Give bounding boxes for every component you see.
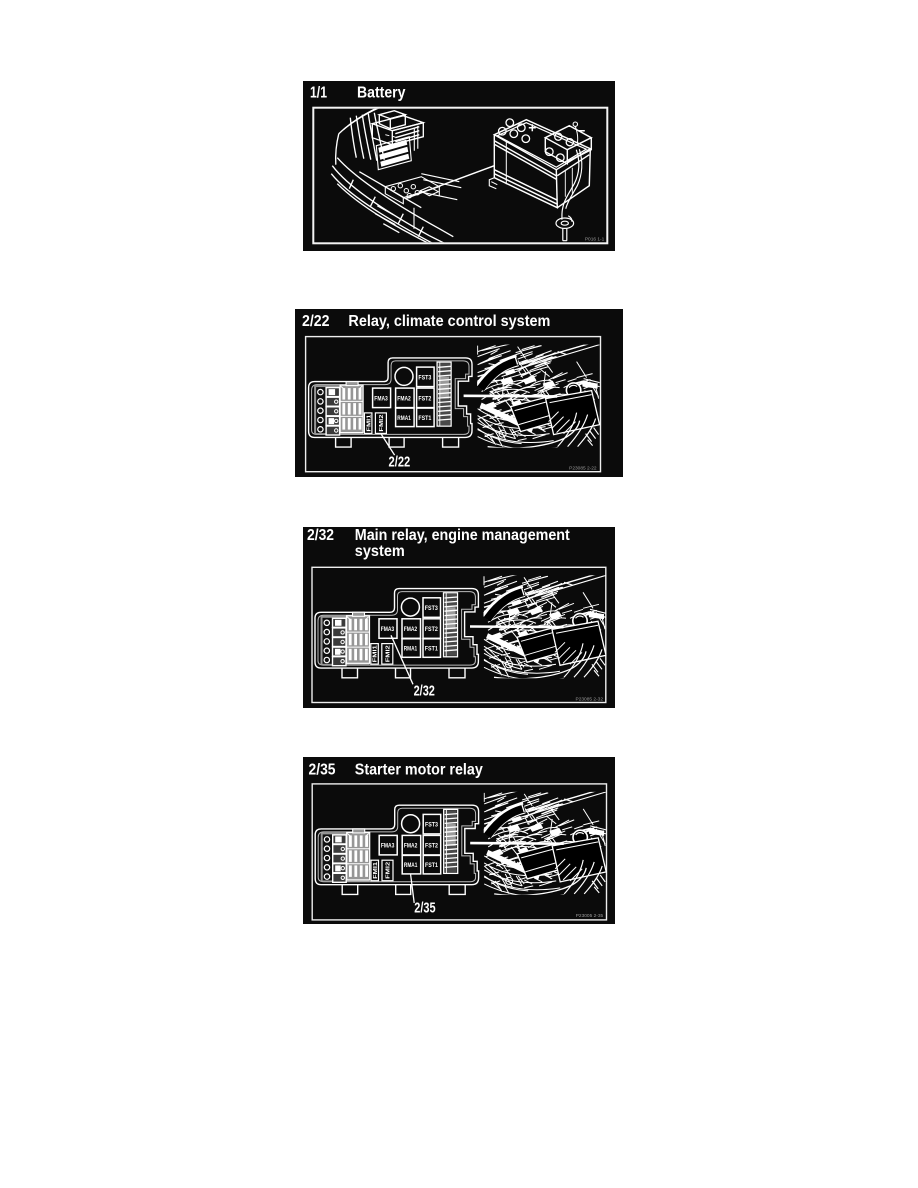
svg-text:Main relay, engine management: Main relay, engine management <box>355 527 570 544</box>
svg-text:2/22: 2/22 <box>302 313 330 330</box>
svg-text:2/32: 2/32 <box>414 682 435 699</box>
svg-text:2/35: 2/35 <box>309 762 336 779</box>
svg-text:1/1: 1/1 <box>310 85 327 102</box>
svg-text:2/35: 2/35 <box>414 900 435 917</box>
svg-text:Battery: Battery <box>357 85 406 102</box>
svg-text:2/22: 2/22 <box>389 454 411 471</box>
svg-text:P016 1-1: P016 1-1 <box>585 237 605 243</box>
svg-text:2/32: 2/32 <box>307 527 334 544</box>
svg-text:Starter motor relay: Starter motor relay <box>355 762 483 779</box>
svg-text:Relay, climate control system: Relay, climate control system <box>348 313 550 330</box>
svg-text:P23005 2-35: P23005 2-35 <box>576 913 604 919</box>
svg-text:system: system <box>355 543 405 560</box>
svg-text:P23085 2-22: P23085 2-22 <box>569 466 597 472</box>
svg-text:P23085 2-32: P23085 2-32 <box>576 696 604 702</box>
